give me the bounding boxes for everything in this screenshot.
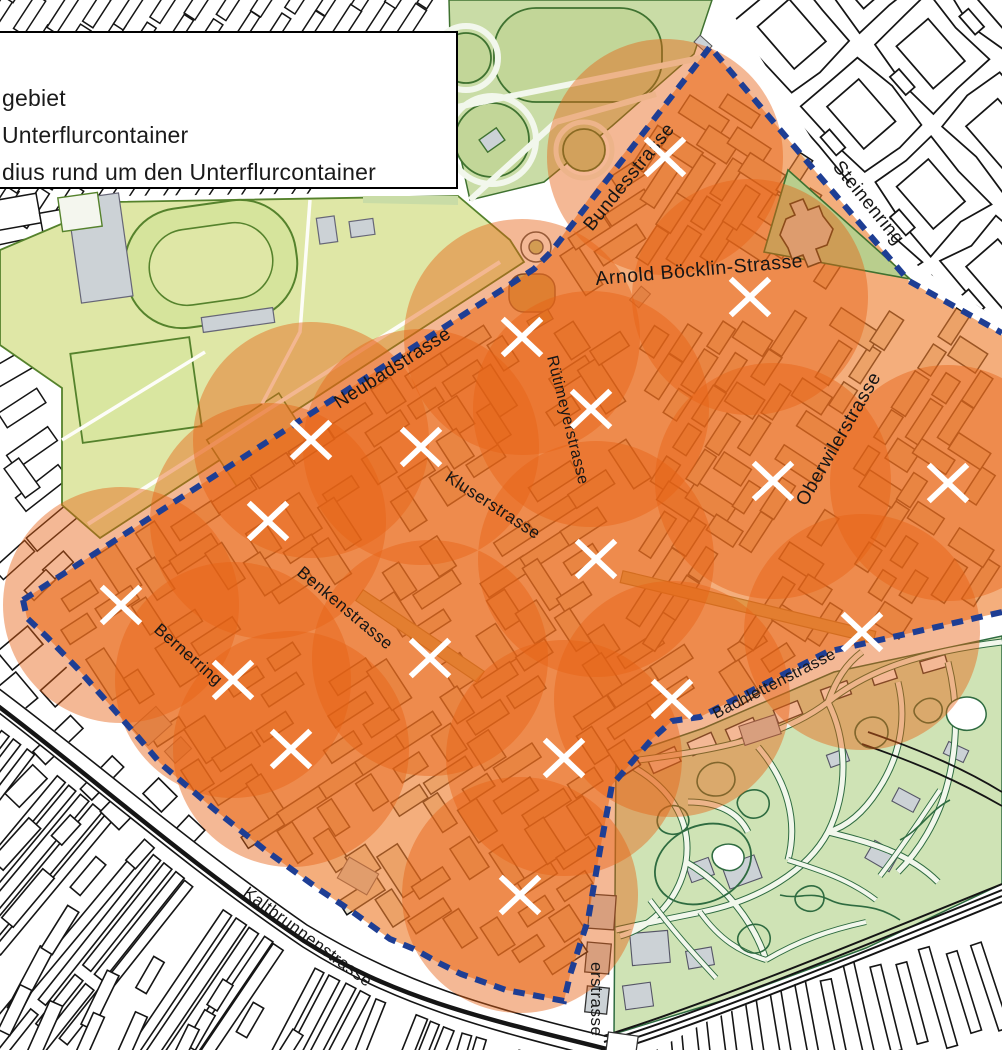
- svg-text:gebiet: gebiet: [2, 85, 66, 111]
- svg-text:Unterflurcontainer: Unterflurcontainer: [2, 122, 189, 148]
- svg-text:dius rund um den Unterflurcont: dius rund um den Unterflurcontainer: [2, 159, 376, 185]
- svg-text:erstrasse: erstrasse: [587, 962, 606, 1036]
